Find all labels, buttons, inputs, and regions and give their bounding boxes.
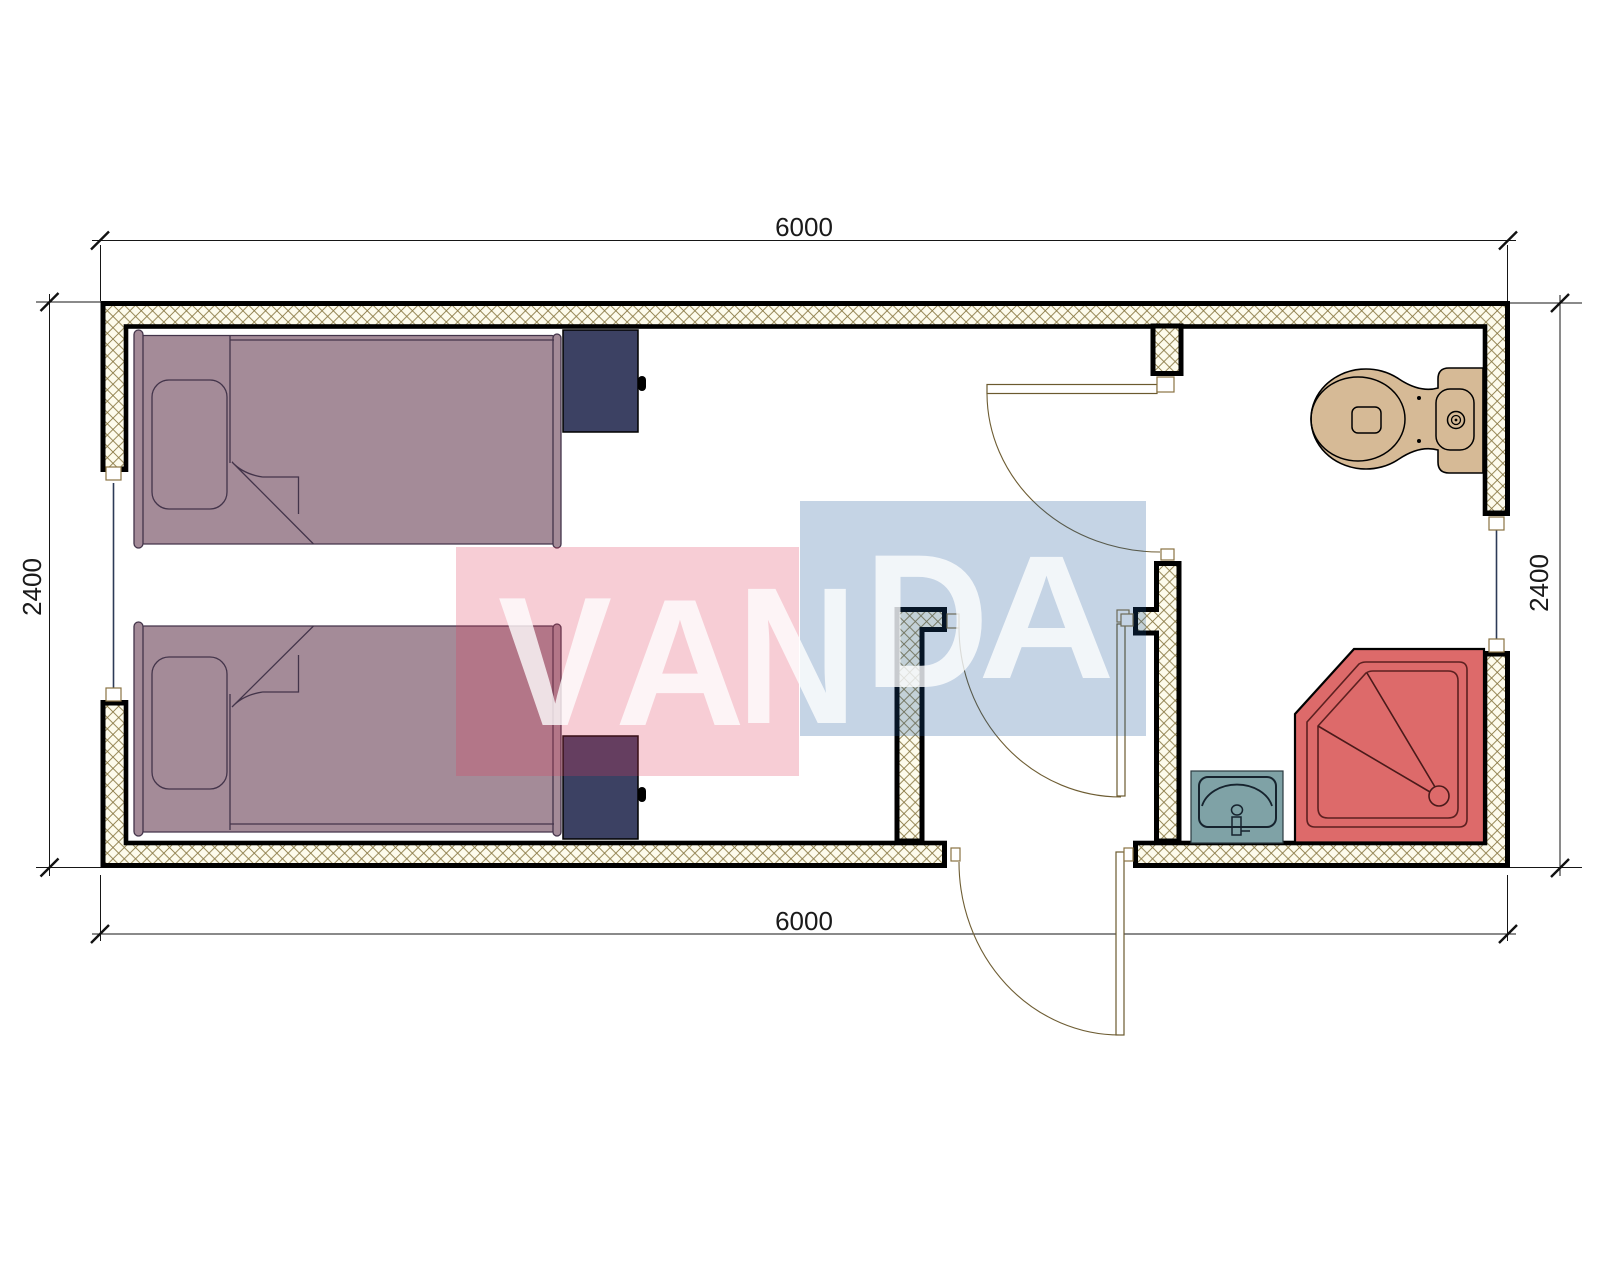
- svg-text:D: D: [864, 515, 989, 728]
- svg-text:6000: 6000: [775, 212, 833, 242]
- svg-text:A: A: [978, 520, 1115, 716]
- svg-text:6000: 6000: [775, 906, 833, 936]
- svg-text:V: V: [498, 558, 612, 764]
- svg-text:2400: 2400: [1524, 554, 1554, 612]
- svg-text:A: A: [615, 562, 745, 764]
- svg-text:2400: 2400: [17, 558, 47, 616]
- svg-text:N: N: [737, 547, 857, 765]
